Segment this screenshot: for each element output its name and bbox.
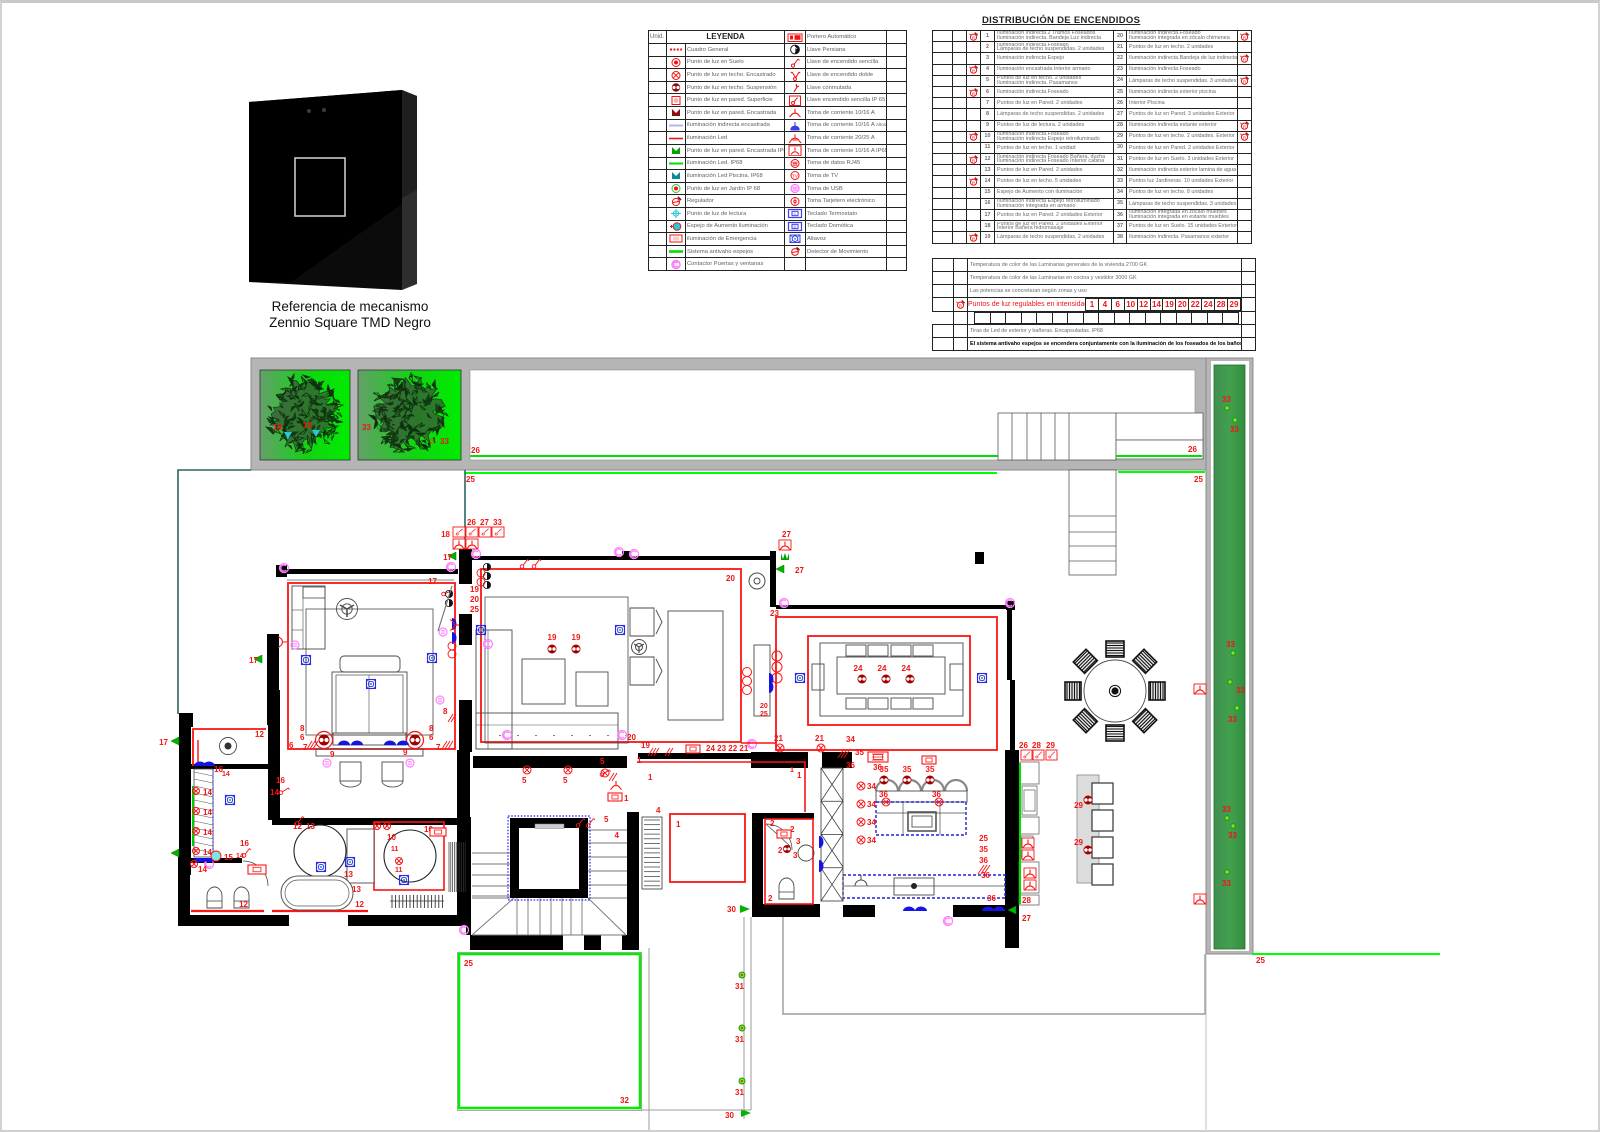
svg-text:26: 26 (1188, 445, 1197, 454)
svg-text:13: 13 (344, 870, 353, 879)
svg-text:27: 27 (782, 530, 791, 539)
svg-text:15: 15 (224, 853, 233, 862)
svg-text:8: 8 (443, 707, 448, 716)
svg-text:20: 20 (470, 595, 479, 604)
svg-text:24: 24 (902, 664, 911, 673)
svg-text:30: 30 (727, 905, 736, 914)
svg-text:26: 26 (471, 446, 480, 455)
svg-text:33: 33 (493, 518, 502, 527)
svg-text:28: 28 (1032, 741, 1041, 750)
svg-text:2: 2 (770, 819, 775, 828)
svg-text:17: 17 (249, 656, 258, 665)
svg-text:32: 32 (620, 1096, 629, 1105)
svg-text:20: 20 (726, 574, 735, 583)
svg-text:24 23 22 21: 24 23 22 21 (706, 744, 749, 753)
svg-text:4: 4 (656, 806, 661, 815)
svg-text:7: 7 (303, 743, 308, 752)
svg-text:13: 13 (352, 885, 361, 894)
svg-text:31: 31 (735, 1035, 744, 1044)
svg-text:21: 21 (774, 734, 783, 743)
svg-text:3: 3 (796, 837, 801, 846)
svg-text:5: 5 (604, 815, 609, 824)
svg-text:27: 27 (795, 566, 804, 575)
svg-text:35: 35 (855, 748, 864, 757)
svg-text:36: 36 (979, 856, 988, 865)
svg-text:23: 23 (770, 609, 779, 618)
svg-text:33: 33 (440, 437, 449, 446)
svg-text:16: 16 (240, 839, 249, 848)
svg-text:6: 6 (429, 733, 434, 742)
svg-text:9: 9 (403, 748, 408, 757)
svg-text:14: 14 (203, 828, 212, 837)
svg-text:17: 17 (428, 577, 437, 586)
svg-text:8: 8 (300, 724, 305, 733)
svg-text:36: 36 (846, 761, 855, 770)
svg-text:33: 33 (1222, 879, 1231, 888)
svg-text:11: 11 (391, 846, 399, 853)
svg-text:12: 12 (355, 900, 364, 909)
svg-text:27: 27 (480, 518, 489, 527)
svg-text:8: 8 (429, 724, 434, 733)
svg-text:24: 24 (878, 664, 887, 673)
svg-text:11: 11 (395, 867, 403, 874)
svg-text:14: 14 (203, 788, 212, 797)
svg-text:18: 18 (303, 421, 312, 430)
svg-text:33: 33 (1230, 425, 1239, 434)
svg-text:36: 36 (932, 790, 941, 799)
svg-text:25: 25 (979, 834, 988, 843)
svg-text:33: 33 (1228, 715, 1237, 724)
svg-text:20: 20 (760, 703, 768, 710)
svg-text:5: 5 (600, 757, 605, 766)
svg-text:2: 2 (768, 894, 773, 903)
svg-text:30: 30 (725, 1111, 734, 1120)
svg-text:14: 14 (203, 808, 212, 817)
svg-text:29: 29 (1046, 741, 1055, 750)
svg-text:31: 31 (735, 1088, 744, 1097)
svg-text:20: 20 (627, 733, 636, 742)
svg-text:1: 1 (637, 756, 642, 765)
svg-text:33: 33 (1222, 395, 1231, 404)
svg-text:17: 17 (159, 738, 168, 747)
svg-text:1: 1 (797, 771, 802, 780)
svg-text:14: 14 (222, 771, 230, 778)
svg-text:29: 29 (1074, 801, 1083, 810)
svg-text:26: 26 (467, 518, 476, 527)
svg-text:1: 1 (624, 794, 629, 803)
svg-text:18: 18 (441, 530, 450, 539)
svg-text:12: 12 (255, 730, 264, 739)
svg-text:34: 34 (867, 782, 876, 791)
svg-text:25: 25 (760, 711, 768, 718)
svg-text:6: 6 (289, 741, 294, 750)
svg-text:17: 17 (443, 553, 452, 562)
svg-text:34: 34 (867, 800, 876, 809)
svg-text:18: 18 (273, 423, 282, 432)
svg-text:25: 25 (466, 475, 475, 484)
svg-text:33: 33 (1222, 805, 1231, 814)
svg-text:24: 24 (854, 664, 863, 673)
svg-text:12: 12 (239, 900, 248, 909)
svg-text:35: 35 (979, 845, 988, 854)
svg-text:25: 25 (1256, 956, 1265, 965)
svg-text:16: 16 (276, 776, 285, 785)
svg-text:3: 3 (793, 851, 798, 860)
svg-text:19: 19 (572, 633, 581, 642)
svg-text:7: 7 (436, 743, 441, 752)
svg-text:9: 9 (330, 750, 335, 759)
svg-text:26: 26 (1019, 741, 1028, 750)
svg-text:1: 1 (648, 773, 653, 782)
svg-text:25: 25 (470, 605, 479, 614)
svg-text:10: 10 (387, 833, 396, 842)
svg-text:33: 33 (1236, 686, 1245, 695)
svg-text:25: 25 (1194, 475, 1203, 484)
svg-text:1: 1 (676, 820, 681, 829)
svg-text:33: 33 (1226, 640, 1235, 649)
svg-text:14: 14 (270, 788, 279, 797)
svg-text:6: 6 (300, 733, 305, 742)
svg-text:13: 13 (306, 822, 315, 831)
svg-text:34: 34 (867, 818, 876, 827)
svg-text:1: 1 (790, 767, 794, 774)
svg-text:31: 31 (735, 982, 744, 991)
svg-text:19: 19 (548, 633, 557, 642)
svg-text:36: 36 (873, 763, 882, 772)
svg-text:25: 25 (464, 959, 473, 968)
svg-text:4: 4 (615, 831, 620, 840)
svg-text:36: 36 (987, 894, 996, 903)
svg-text:19: 19 (470, 585, 479, 594)
svg-text:2: 2 (778, 846, 783, 855)
svg-text:21: 21 (815, 734, 824, 743)
svg-text:34: 34 (867, 836, 876, 845)
svg-text:29: 29 (1074, 838, 1083, 847)
svg-text:19: 19 (641, 741, 650, 750)
svg-text:5: 5 (563, 776, 568, 785)
svg-text:5: 5 (522, 776, 527, 785)
svg-text:36: 36 (879, 790, 888, 799)
svg-text:28: 28 (1022, 896, 1031, 905)
svg-text:35: 35 (903, 765, 912, 774)
svg-text:33: 33 (362, 423, 371, 432)
svg-text:12: 12 (293, 822, 302, 831)
svg-text:34: 34 (846, 735, 855, 744)
svg-text:14: 14 (198, 865, 207, 874)
svg-text:35: 35 (926, 765, 935, 774)
svg-text:33: 33 (1228, 831, 1237, 840)
svg-text:27: 27 (1022, 914, 1031, 923)
svg-text:36: 36 (981, 871, 990, 880)
